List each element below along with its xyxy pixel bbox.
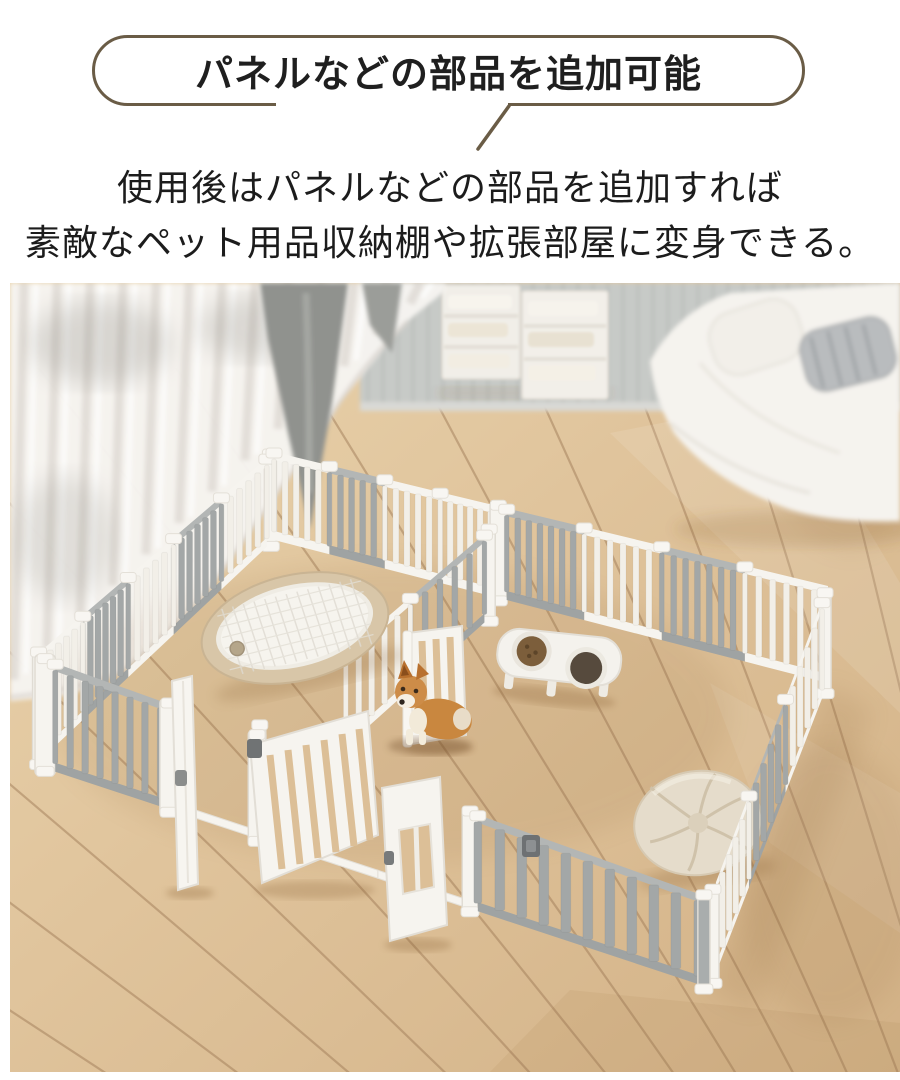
description-line-1: 使用後はパネルなどの部品を追加すれば — [0, 160, 900, 215]
description-line-2: 素敵なペット用品収納棚や拡張部屋に変身できる。 — [0, 215, 900, 270]
room-scene — [10, 283, 900, 1072]
product-photo — [10, 283, 900, 1072]
banner-label: パネルなどの部品を追加可能 — [195, 43, 702, 98]
product-page: { "banner": { "label": "パネルなどの部品を追加可能" }… — [0, 0, 900, 1080]
description-text: 使用後はパネルなどの部品を追加すれば 素敵なペット用品収納棚や拡張部屋に変身でき… — [0, 160, 900, 270]
open-door-window — [382, 777, 452, 952]
speech-bubble: パネルなどの部品を追加可能 — [92, 35, 805, 106]
